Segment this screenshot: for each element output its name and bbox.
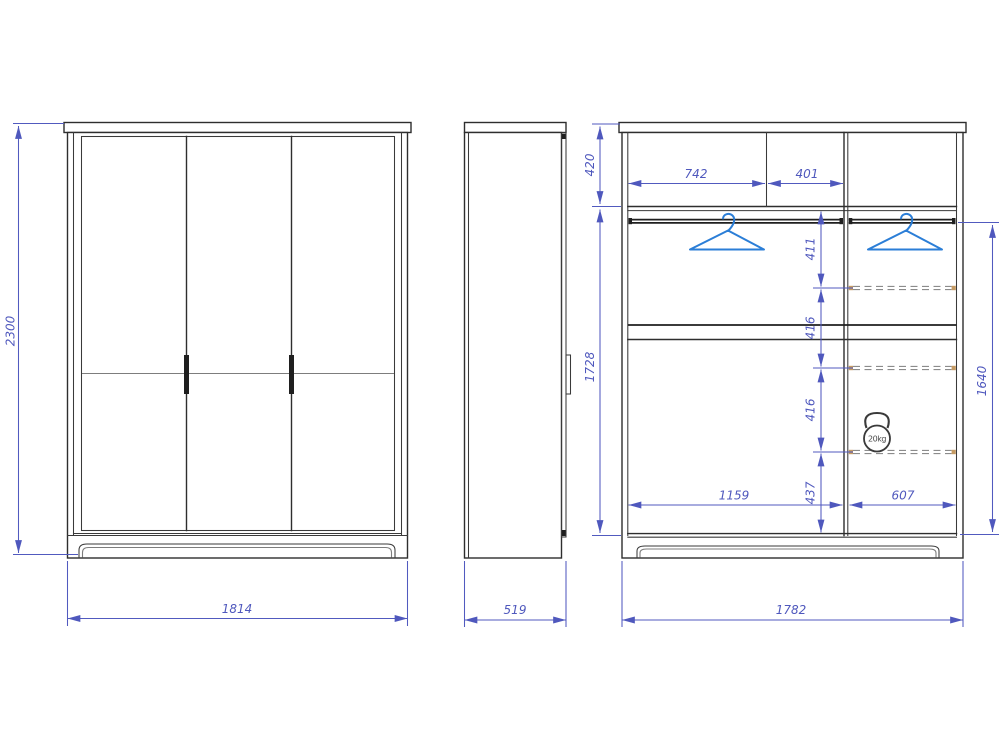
shelf-pin: [952, 450, 956, 454]
dimension-label: 437: [804, 481, 818, 504]
dimension-label: 420: [583, 153, 597, 176]
top-panel: [64, 123, 411, 133]
rod-end-cap: [629, 218, 633, 224]
cabinet-body: [68, 133, 408, 559]
dimension-label: 742: [685, 167, 708, 181]
max-load-label: 20kg: [868, 435, 886, 444]
dimension-side-depth: 519: [465, 561, 567, 627]
front-view: [64, 123, 411, 559]
dimension-label: 411: [804, 238, 818, 261]
door-handle-right: [289, 355, 294, 394]
door-edge-tick-bottom: [562, 530, 566, 536]
dimension-label: 519: [504, 603, 527, 617]
dimension-label: 1640: [975, 365, 989, 396]
rod-end-cap: [952, 218, 956, 224]
dimension-label: 416: [804, 316, 818, 339]
dimension-label: 416: [804, 398, 818, 421]
side-view: [465, 123, 571, 559]
dimension-label: 2300: [4, 315, 18, 346]
kettlebell-icon: 20kg: [864, 413, 890, 452]
drawing-canvas: 20kg 2300 1814 519: [0, 0, 1000, 750]
rod-end-cap: [840, 218, 844, 224]
dimension-label: 1814: [222, 602, 253, 616]
dimension-label: 1728: [583, 351, 597, 382]
rod-end-cap: [849, 218, 853, 224]
shelf-pin: [952, 286, 956, 290]
dimension-interior-width: 1782: [622, 561, 963, 627]
dimension-label: 607: [892, 489, 915, 503]
dimension-right-section-height: 1640: [958, 223, 999, 535]
side-handle: [566, 355, 571, 394]
door-handle-left: [184, 355, 189, 394]
shelf-pin: [952, 366, 956, 370]
dimension-top-section-height: 420: [583, 124, 621, 207]
wardrobe-technical-drawing: 20kg 2300 1814 519: [0, 0, 1000, 750]
top-panel: [619, 123, 966, 133]
side-body: [465, 133, 562, 559]
dimension-front-width: 1814: [68, 561, 408, 626]
door-edge-tick-top: [562, 134, 566, 139]
dimension-label: 1159: [719, 489, 750, 503]
dimension-label: 1782: [776, 603, 807, 617]
dimension-interior-height: 1728: [583, 210, 621, 536]
top-panel: [465, 123, 567, 133]
dimension-label: 401: [796, 167, 819, 181]
